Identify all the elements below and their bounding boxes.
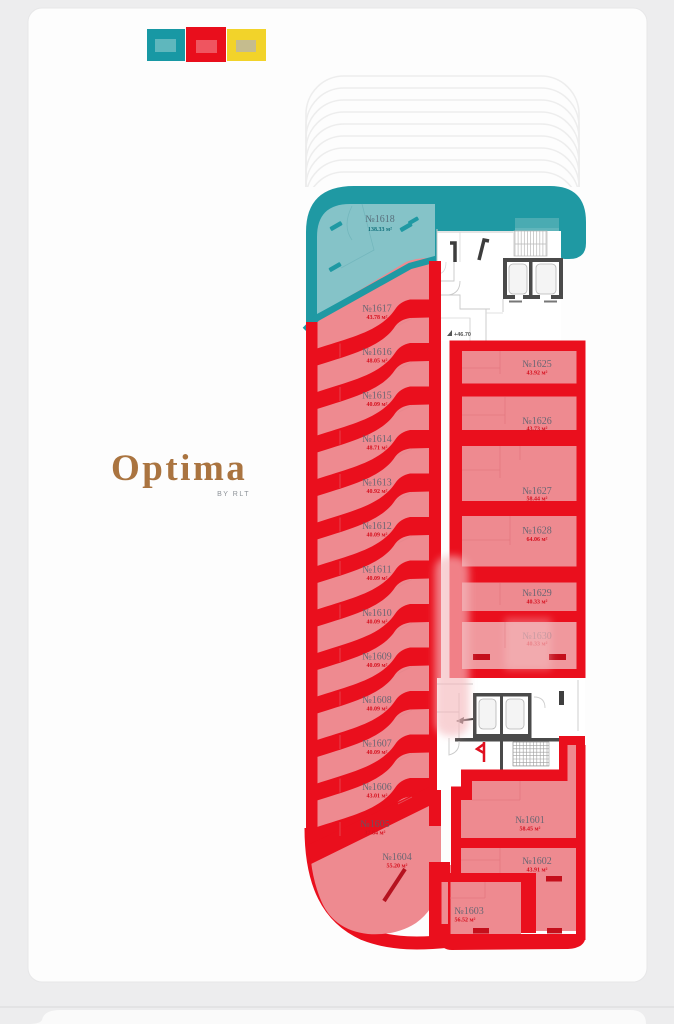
svg-text:№1606: №1606	[362, 782, 392, 793]
svg-text:№1607: №1607	[362, 739, 392, 750]
svg-text:+46.70: +46.70	[454, 332, 471, 338]
svg-text:58.44 м²: 58.44 м²	[527, 497, 548, 503]
svg-text:№1617: №1617	[362, 304, 392, 315]
svg-text:56.52 м²: 56.52 м²	[455, 918, 476, 924]
svg-text:№1616: №1616	[362, 347, 392, 358]
svg-text:№1629: №1629	[522, 588, 552, 599]
svg-text:№1612: №1612	[362, 521, 392, 532]
svg-text:43.01 м²: 43.01 м²	[367, 794, 388, 800]
svg-text:№1626: №1626	[522, 416, 552, 427]
svg-text:40.09 м²: 40.09 м²	[367, 402, 388, 408]
svg-text:№1609: №1609	[362, 652, 392, 663]
svg-text:37.84 м²: 37.84 м²	[365, 831, 386, 837]
svg-text:138.33 м²: 138.33 м²	[368, 227, 392, 233]
svg-text:40.09 м²: 40.09 м²	[367, 576, 388, 582]
svg-text:№1603: №1603	[454, 906, 484, 917]
svg-text:№1605: №1605	[360, 819, 390, 830]
svg-text:№1610: №1610	[362, 608, 392, 619]
svg-text:43.78 м²: 43.78 м²	[367, 315, 388, 321]
svg-text:48.71 м²: 48.71 м²	[367, 446, 388, 452]
svg-text:№1602: №1602	[522, 856, 552, 867]
svg-text:BY RLT: BY RLT	[217, 491, 250, 498]
svg-text:40.09 м²: 40.09 м²	[367, 707, 388, 713]
svg-text:№1614: №1614	[362, 434, 392, 445]
svg-text:40.09 м²: 40.09 м²	[367, 533, 388, 539]
svg-text:№1604: №1604	[382, 852, 412, 863]
svg-text:№1625: №1625	[522, 359, 552, 370]
svg-text:58.45 м²: 58.45 м²	[520, 827, 541, 833]
svg-text:40.09 м²: 40.09 м²	[367, 663, 388, 669]
svg-text:№1613: №1613	[362, 478, 392, 489]
svg-text:48.05 м²: 48.05 м²	[367, 359, 388, 365]
svg-text:№1615: №1615	[362, 391, 392, 402]
svg-text:64.06 м²: 64.06 м²	[527, 537, 548, 543]
svg-text:43.73 м²: 43.73 м²	[527, 427, 548, 433]
svg-text:№1618: №1618	[365, 214, 395, 225]
svg-text:Optima: Optima	[111, 448, 247, 489]
svg-text:43.92 м²: 43.92 м²	[527, 371, 548, 377]
svg-text:№1627: №1627	[522, 486, 552, 497]
svg-text:№1608: №1608	[362, 695, 392, 706]
svg-text:№1601: №1601	[515, 815, 545, 826]
svg-text:40.09 м²: 40.09 м²	[367, 620, 388, 626]
svg-text:40.92 м²: 40.92 м²	[367, 489, 388, 495]
svg-text:40.09 м²: 40.09 м²	[367, 750, 388, 756]
svg-text:40.33 м²: 40.33 м²	[527, 600, 548, 606]
svg-text:43.91 м²: 43.91 м²	[527, 868, 548, 874]
svg-text:55.20 м²: 55.20 м²	[387, 864, 408, 870]
svg-text:№1628: №1628	[522, 526, 552, 537]
svg-text:№1611: №1611	[362, 565, 391, 576]
